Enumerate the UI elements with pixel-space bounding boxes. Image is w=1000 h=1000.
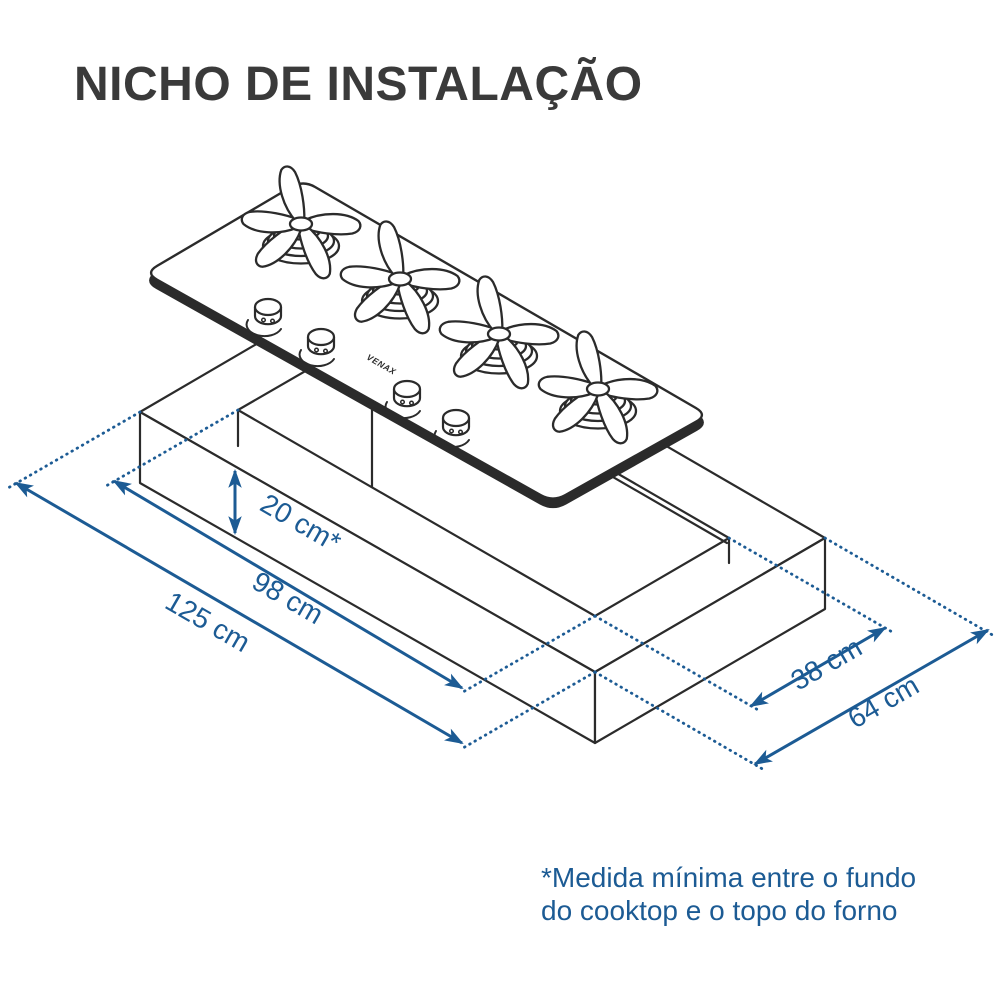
extension-line (825, 538, 996, 637)
installation-diagram: VENAX 20 cm* 98 cm 125 cm 38 cm 64 cm (0, 0, 1000, 1000)
footnote-line-2: do cooktop e o topo do forno (541, 894, 916, 927)
footnote: *Medida mínima entre o fundo do cooktop … (541, 861, 916, 927)
dimension-label: 64 cm (842, 669, 924, 734)
dimension-label: 38 cm (785, 631, 867, 696)
extension-line (8, 412, 140, 488)
footnote-line-1: *Medida mínima entre o fundo (541, 861, 916, 894)
